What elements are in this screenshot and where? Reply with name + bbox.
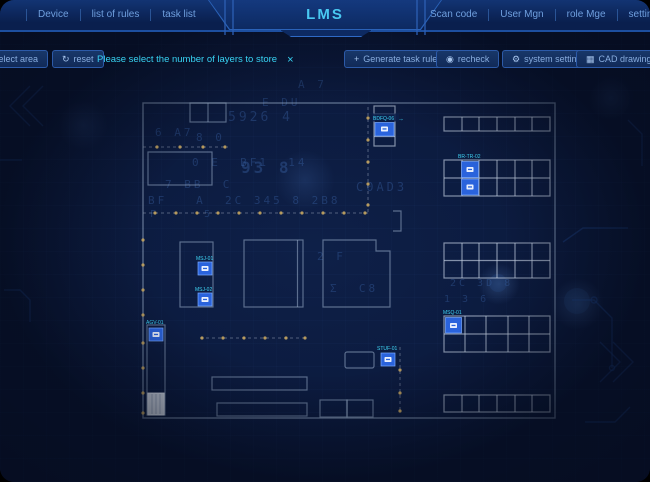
device-label: MSJ-01 — [196, 256, 213, 262]
device-icon — [467, 185, 474, 190]
recheck-button[interactable]: ◉ recheck — [436, 50, 499, 68]
room-b — [244, 240, 303, 307]
bottom-box-1 — [320, 400, 347, 417]
rack-1 — [444, 117, 550, 131]
select-area-label: select area — [0, 54, 38, 64]
right-menu: Scan code User Mgn role Mge settings — [419, 9, 650, 21]
grid-icon: ▦ — [586, 54, 595, 65]
corridor-device[interactable]: AGV-01 — [146, 320, 164, 341]
device-icon[interactable] — [198, 262, 212, 275]
device-label: MSQ-01 — [443, 310, 462, 316]
menu-item-list-of-rules[interactable]: list of rules — [81, 9, 152, 21]
menu-item-user-mgn[interactable]: User Mgn — [489, 9, 555, 21]
record-icon: ◉ — [446, 54, 454, 65]
rack-5 — [444, 395, 550, 412]
cad-drawing-settings-label: CAD drawing settings — [599, 54, 650, 64]
menu-item-settings[interactable]: settings — [618, 9, 650, 21]
reset-label: reset — [74, 54, 94, 64]
device-icon — [381, 127, 388, 132]
title-tab-notch — [280, 30, 372, 37]
header-slash-decor — [224, 0, 226, 35]
reset-button[interactable]: ↻ reset — [52, 50, 104, 68]
device-icon[interactable] — [149, 328, 163, 341]
room-a-device-1[interactable]: MSJ-01 — [196, 256, 213, 275]
generate-task-rules-label: Generate task rules — [363, 54, 442, 64]
menu-item-scan-code[interactable]: Scan code — [419, 9, 489, 21]
header-slash-decor — [416, 0, 418, 35]
room-a-device-2[interactable]: MSJ-02 — [195, 287, 212, 306]
top-vertical-rack[interactable]: BDFQ-06 → — [372, 106, 404, 146]
top-nav: LMS Device list of rules task list Scan … — [0, 0, 650, 32]
storage-racks[interactable] — [444, 117, 550, 412]
toolbar: select area ↻ reset Please select the nu… — [0, 49, 650, 71]
room-c — [323, 240, 390, 307]
rack-2 — [444, 160, 550, 196]
device-label: MSJ-02 — [195, 287, 212, 293]
recheck-label: recheck — [458, 54, 490, 64]
device-icon — [450, 323, 457, 328]
conveyor-2 — [217, 403, 307, 416]
cad-drawing-settings-button[interactable]: ▦ CAD drawing settings — [576, 50, 650, 68]
menu-item-device[interactable]: Device — [27, 9, 81, 21]
room-upper-left — [148, 152, 212, 185]
device-label: STUF-01 — [377, 346, 398, 352]
device-icon[interactable] — [381, 353, 395, 366]
left-menu: Device list of rules task list — [26, 9, 207, 21]
dashed-lines — [143, 107, 400, 412]
rack-3 — [444, 243, 550, 278]
device-icon[interactable] — [198, 293, 212, 306]
device-label: AGV-01 — [146, 320, 164, 326]
cad-canvas[interactable]: BDFQ-06 → BR-TR-02 MSQ-01 MSJ-01 MSJ-02 — [0, 0, 650, 482]
top-double-box — [190, 103, 226, 122]
gear-icon: ⚙ — [512, 54, 520, 65]
center-device[interactable]: STUF-01 — [377, 346, 398, 366]
plus-icon: + — [354, 54, 359, 64]
device-icon — [467, 167, 474, 172]
hint-message: Please select the number of layers to st… — [97, 54, 294, 65]
device-label: BR-TR-02 — [458, 154, 481, 160]
conveyor-1 — [212, 377, 307, 390]
door-bracket — [393, 211, 401, 231]
circuit-decoration — [0, 86, 642, 422]
label-arrow-icon: → — [398, 117, 404, 123]
hint-text: Please select the number of layers to st… — [97, 54, 277, 65]
small-box — [345, 352, 374, 368]
reset-icon: ↻ — [62, 54, 70, 65]
select-area-button[interactable]: select area — [0, 50, 48, 68]
menu-item-task-list[interactable]: task list — [151, 9, 206, 21]
app-window: E DU 5926 4 6 A7 8 0 0 E BF1 14 93 8 7 B… — [0, 0, 650, 482]
menu-item-role-mge[interactable]: role Mge — [556, 9, 618, 21]
dock-block — [148, 393, 164, 415]
close-icon[interactable]: × — [287, 55, 293, 65]
device-label: BDFQ-06 — [373, 116, 394, 122]
rack4-device[interactable]: MSQ-01 — [443, 310, 462, 333]
bottom-box-2 — [347, 400, 373, 417]
header-slash-decor — [232, 0, 234, 35]
